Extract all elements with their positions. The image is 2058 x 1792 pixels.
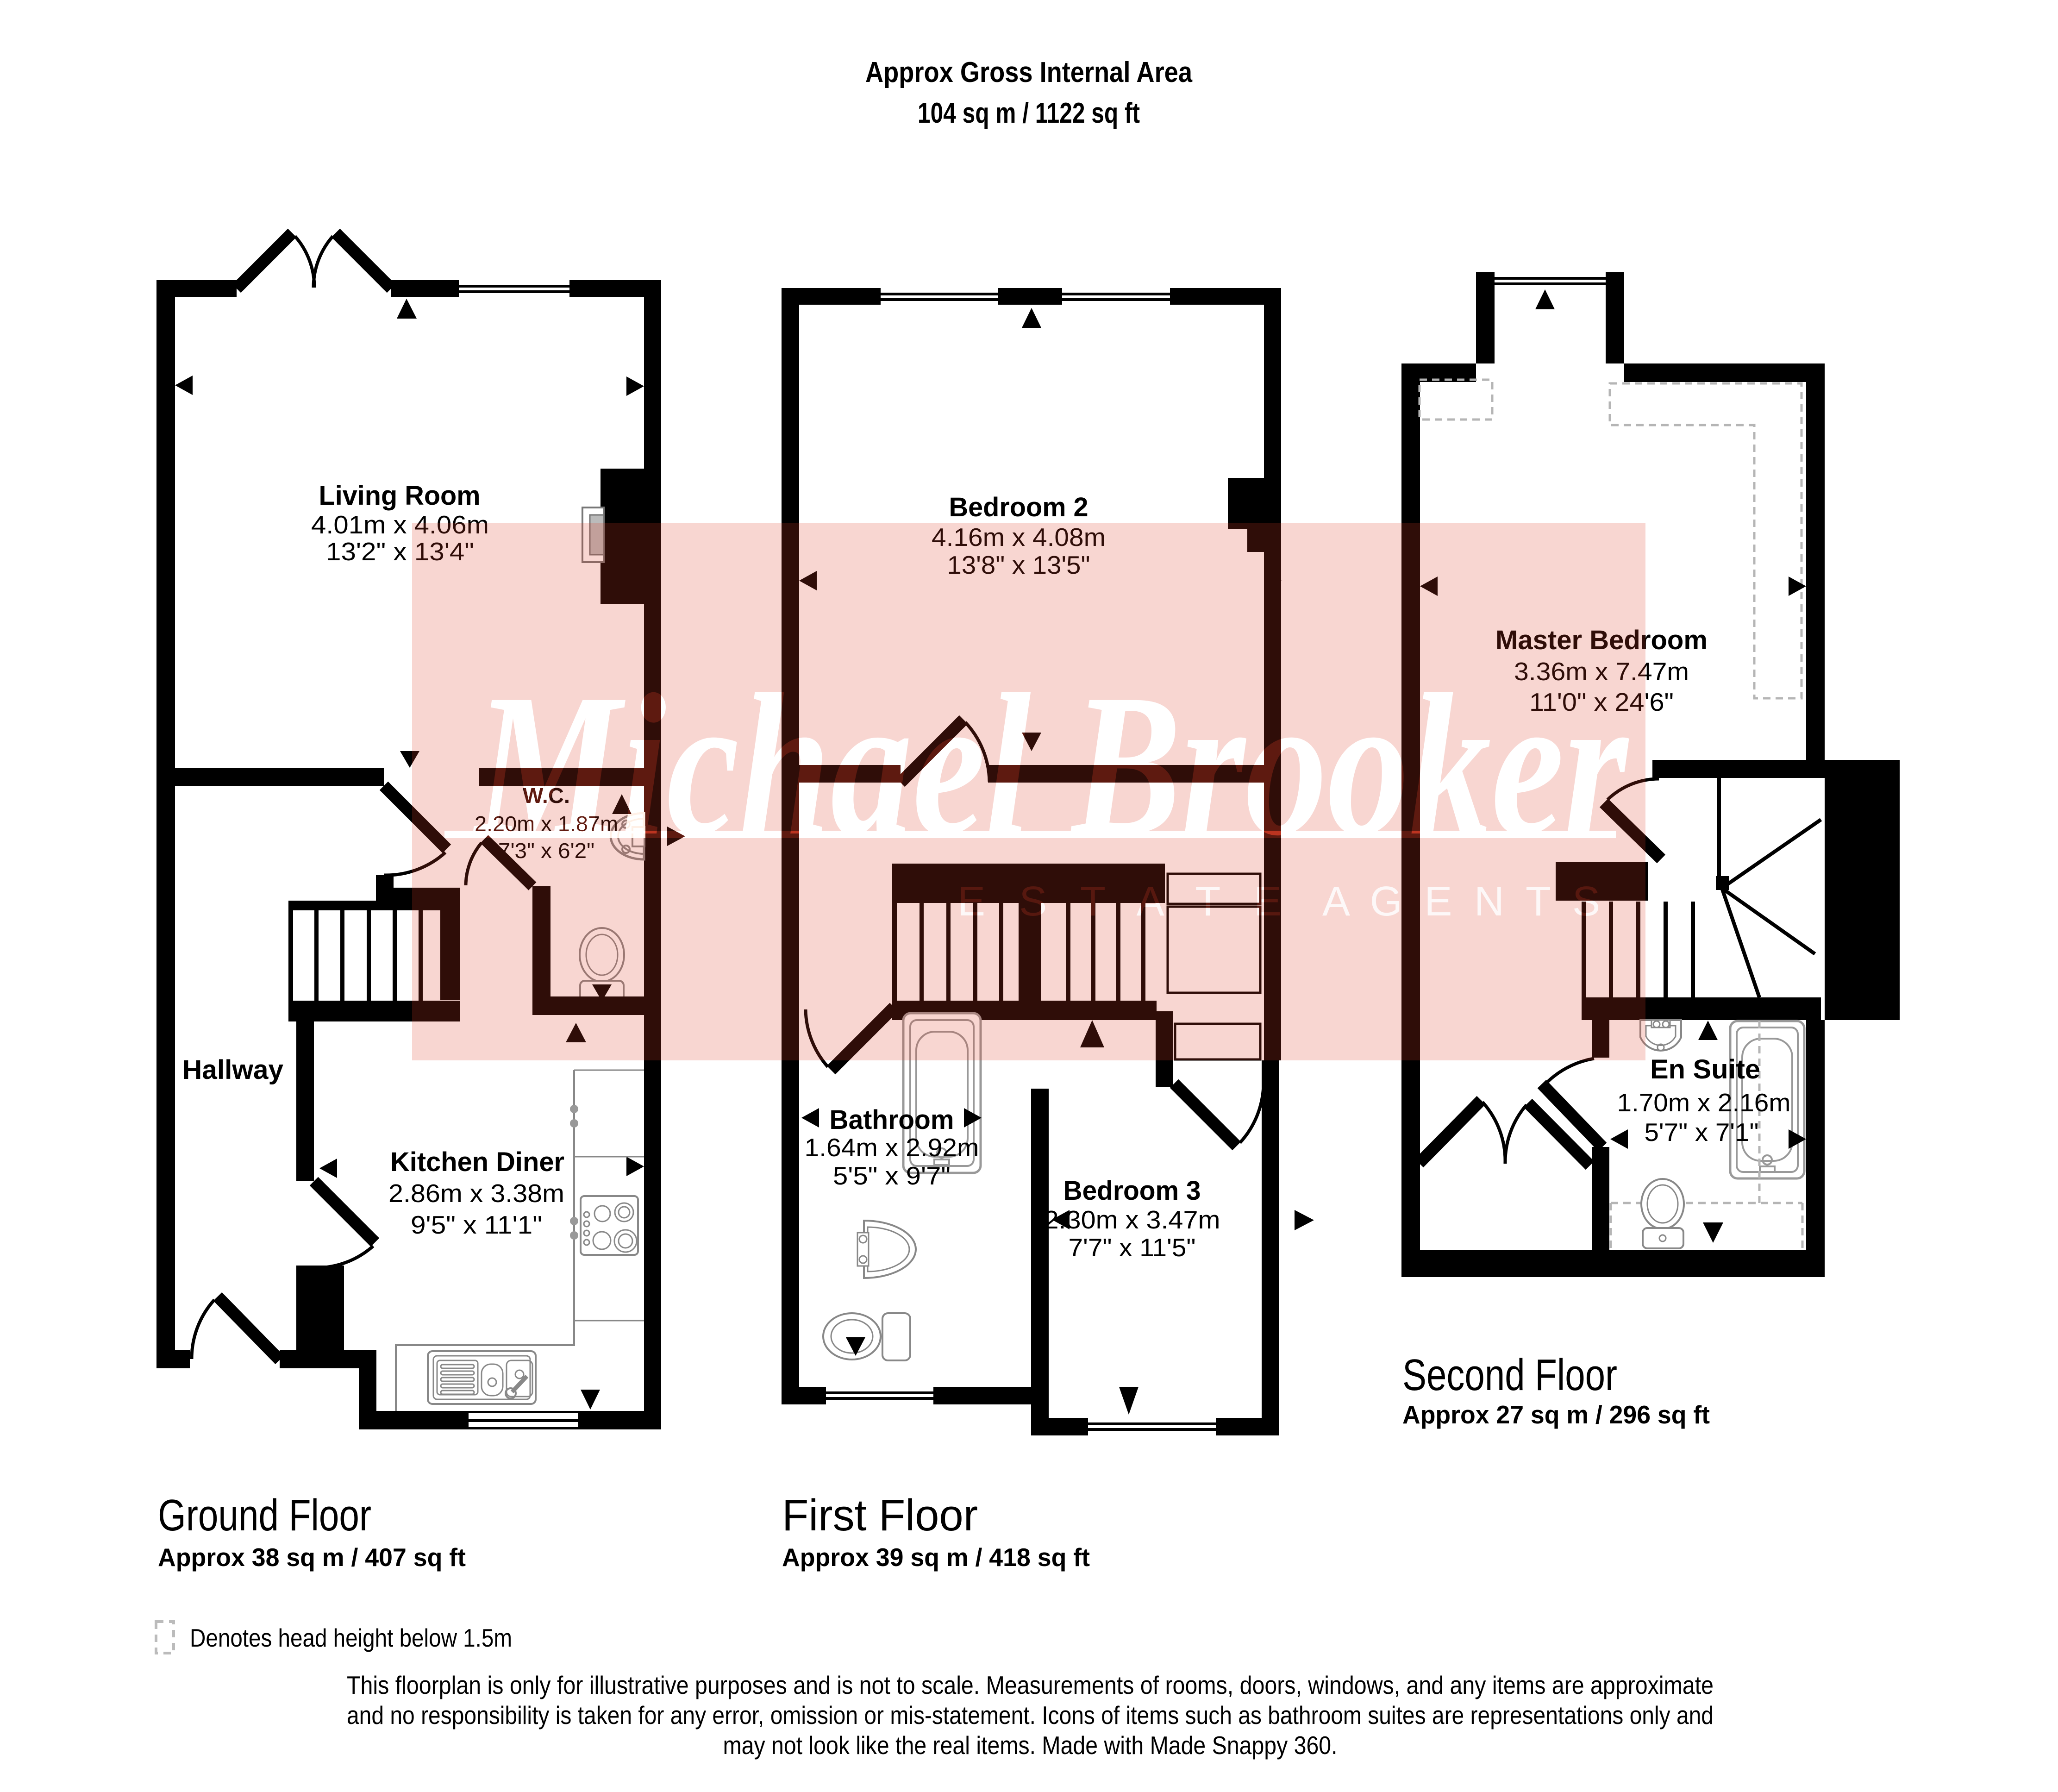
svg-text:Approx Gross Internal Area: Approx Gross Internal Area xyxy=(865,56,1192,88)
svg-text:Kitchen Diner: Kitchen Diner xyxy=(390,1147,564,1177)
svg-text:and no responsibility is taken: and no responsibility is taken for any e… xyxy=(347,1701,1714,1729)
svg-text:Bathroom: Bathroom xyxy=(830,1105,954,1135)
svg-text:A G E N T S: A G E N T S xyxy=(1322,878,1600,925)
svg-text:Bedroom 2: Bedroom 2 xyxy=(949,492,1088,522)
svg-text:Living Room: Living Room xyxy=(319,481,481,511)
svg-text:E S T A T E: E S T A T E xyxy=(957,878,1282,925)
svg-text:may not look like the real ite: may not look like the real items. Made w… xyxy=(723,1731,1338,1760)
svg-text:2.86m x 3.38m: 2.86m x 3.38m xyxy=(388,1179,564,1208)
svg-text:5'7" x 7'1": 5'7" x 7'1" xyxy=(1645,1118,1759,1147)
svg-text:Approx 39 sq m / 418 sq ft: Approx 39 sq m / 418 sq ft xyxy=(782,1543,1090,1572)
svg-text:1.70m x 2.16m: 1.70m x 2.16m xyxy=(1617,1088,1791,1117)
svg-text:Approx 27 sq m / 296 sq ft: Approx 27 sq m / 296 sq ft xyxy=(1402,1400,1710,1429)
svg-text:Bedroom 3: Bedroom 3 xyxy=(1063,1176,1201,1206)
svg-text:104 sq m / 1122 sq ft: 104 sq m / 1122 sq ft xyxy=(918,97,1140,129)
svg-text:Denotes head height below 1.5m: Denotes head height below 1.5m xyxy=(190,1623,512,1652)
svg-text:First Floor: First Floor xyxy=(782,1491,978,1540)
svg-text:Ground Floor: Ground Floor xyxy=(158,1491,371,1540)
svg-text:Hallway: Hallway xyxy=(182,1055,283,1085)
svg-text:2.30m x 3.47m: 2.30m x 3.47m xyxy=(1044,1205,1220,1234)
svg-text:Second Floor: Second Floor xyxy=(1402,1350,1617,1400)
svg-text:This floorplan is only for ill: This floorplan is only for illustrative … xyxy=(347,1671,1714,1699)
svg-text:En Suite: En Suite xyxy=(1650,1054,1760,1084)
svg-text:7'7" x 11'5": 7'7" x 11'5" xyxy=(1069,1233,1196,1262)
svg-text:Michael Brooker: Michael Brooker xyxy=(472,652,1631,878)
svg-text:5'5" x 9'7": 5'5" x 9'7" xyxy=(833,1161,951,1190)
svg-text:9'5" x 11'1": 9'5" x 11'1" xyxy=(411,1210,542,1239)
svg-text:Approx 38 sq m / 407 sq ft: Approx 38 sq m / 407 sq ft xyxy=(158,1543,466,1572)
svg-text:1.64m x 2.92m: 1.64m x 2.92m xyxy=(805,1133,979,1162)
